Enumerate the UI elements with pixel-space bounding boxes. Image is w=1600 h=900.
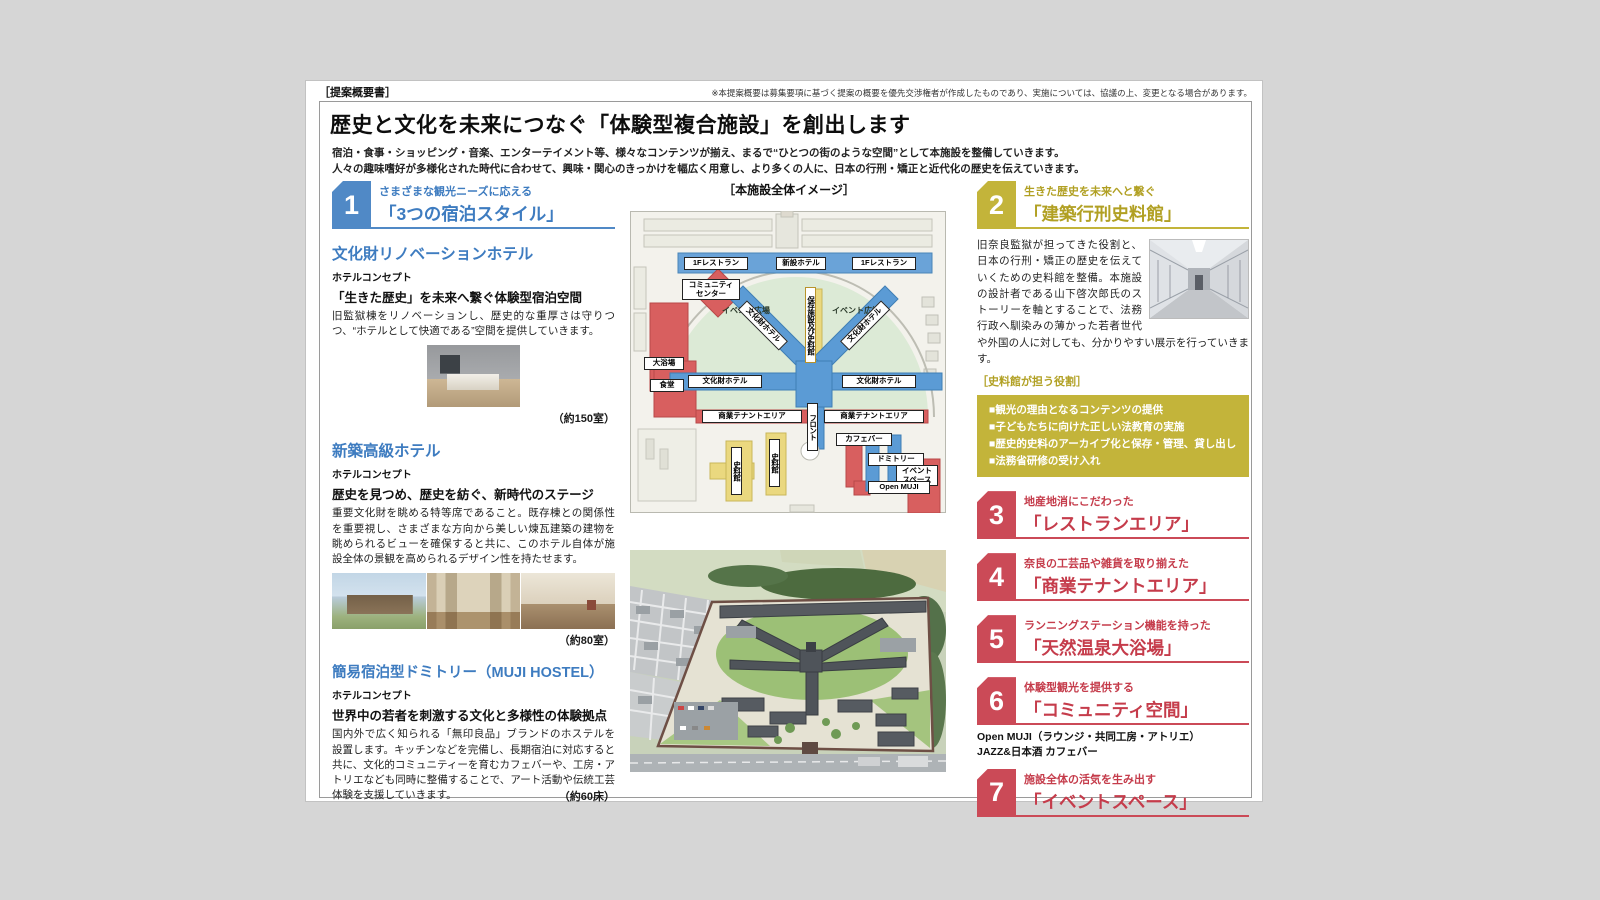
canvas: ［提案概要書］ ※本提案概要は募集要項に基づく提案の概要を優先交渉権者が作成した…	[0, 0, 1600, 900]
hotel-name: 新築高級ホテル	[332, 439, 615, 461]
facility-map-title: ［本施設全体イメージ］	[628, 181, 950, 198]
map-label-dining-hall: 食堂	[650, 379, 684, 392]
photo-bunk-room	[332, 345, 426, 407]
column-facility-image: ［本施設全体イメージ］	[628, 181, 950, 772]
disclaimer-note: ※本提案概要は募集要項に基づく提案の概要を優先交渉権者が作成したものであり、実施…	[711, 87, 1252, 99]
corridor-photo-graphic	[1150, 240, 1248, 318]
subtitle-line-1: 宿泊・食事・ショッピング・音楽、エンターテイメント等、様々なコンテンツが揃え、ま…	[332, 145, 1065, 160]
section5-header: 5 ランニングステーション機能を持った 「天然温泉大浴場」	[977, 615, 1249, 663]
subtitle-line-2: 人々の趣味嗜好が多様化された時代に合わせて、興味・関心のきっかけを幅広く用意し、…	[332, 161, 1085, 176]
map-label-dormitory: ドミトリー	[868, 453, 924, 466]
map-label-commercial-right: 商業テナントエリア	[824, 410, 924, 423]
hotel-concept-label: ホテルコンセプト	[332, 466, 615, 481]
section1-number-badge: 1	[332, 181, 371, 229]
hotel-photos-luxury	[332, 573, 615, 629]
photo-corridor-lounge	[521, 345, 615, 407]
section3-title: 「レストランエリア」	[1024, 511, 1249, 536]
museum-role-item: ■子どもたちに向けた正しい法教育の実施	[989, 419, 1243, 436]
section7-header: 7 施設全体の活気を生み出す 「イベントスペース」	[977, 769, 1249, 817]
section3-tagline: 地産地消にこだわった	[1024, 491, 1249, 509]
map-label-restaurant-left: 1Fレストラン	[684, 257, 748, 270]
museum-role-item: ■歴史的史料のアーカイブ化と保存・管理、貸し出し	[989, 436, 1243, 453]
section7-tagline: 施設全体の活気を生み出す	[1024, 769, 1249, 787]
hotel-block-luxury: 新築高級ホテル ホテルコンセプト 歴史を見つめ、歴史を紡ぐ、新時代のステージ 重…	[332, 439, 615, 648]
hotel-concept-label: ホテルコンセプト	[332, 269, 615, 284]
section1-tagline: さまざまな観光ニーズに応える	[379, 181, 615, 199]
section6-note: JAZZ&日本酒 カフェバー	[977, 745, 1249, 760]
map-label-preservation-museum: 保存施設及び史料館	[805, 287, 816, 363]
section6-title: 「コミュニティ空間」	[1024, 697, 1249, 722]
map-label-front-desk: フロント	[807, 403, 818, 451]
hotel-block-renovation: 文化財リノベーションホテル ホテルコンセプト 「生きた歴史」を未来へ繋ぐ体験型宿…	[332, 242, 615, 426]
section6-tagline: 体験型観光を提供する	[1024, 677, 1249, 695]
section4-tagline: 奈良の工芸品や雑貨を取り揃えた	[1024, 553, 1249, 571]
hotel-concept-label: ホテルコンセプト	[332, 687, 615, 702]
photo-lounge	[521, 573, 615, 629]
doc-label: ［提案概要書］	[319, 84, 396, 100]
museum-roles-title: ［史料館が担う役割］	[977, 373, 1249, 389]
hotel-name: 簡易宿泊型ドミトリー（MUJI HOSTEL）	[332, 661, 615, 682]
museum-roles-box: ■観光の理由となるコンテンツの提供 ■子どもたちに向けた正しい法教育の実施 ■歴…	[977, 395, 1249, 477]
section4-title: 「商業テナントエリア」	[1024, 573, 1249, 598]
map-label-open-muji: Open MUJI	[868, 481, 930, 494]
hotel-description: 旧監獄棟をリノベーションし、歴史的な重厚さは守りつつ、“ホテルとして快適である”…	[332, 309, 615, 339]
section2-title: 「建築行刑史料館」	[1024, 201, 1249, 226]
hotel-capacity: （約150室）	[332, 410, 615, 426]
section6-notes: Open MUJI（ラウンジ・共同工房・アトリエ） JAZZ&日本酒 カフェバー	[977, 730, 1249, 760]
map-label-commercial-left: 商業テナントエリア	[702, 410, 802, 423]
section1-title: 「3つの宿泊スタイル」	[379, 201, 615, 226]
section4-header: 4 奈良の工芸品や雑貨を取り揃えた 「商業テナントエリア」	[977, 553, 1249, 601]
map-label-community-center: コミュニティ センター	[682, 279, 740, 300]
museum-corridor-photo	[1149, 239, 1249, 319]
museum-role-item: ■観光の理由となるコンテンツの提供	[989, 402, 1243, 419]
column-accommodation: 1 さまざまな観光ニーズに応える 「3つの宿泊スタイル」 文化財リノベーションホ…	[332, 181, 615, 804]
aerial-view-photo	[630, 550, 946, 772]
map-label-cafe-bar: カフェバー	[836, 433, 892, 446]
section7-number-badge: 7	[977, 769, 1016, 817]
section7-title: 「イベントスペース」	[1024, 789, 1249, 814]
section2-number-badge: 2	[977, 181, 1016, 229]
hotel-concept: 世界中の若者を刺激する文化と多様性の体験拠点	[332, 705, 615, 724]
section6-header: 6 体験型観光を提供する 「コミュニティ空間」	[977, 677, 1249, 725]
hotel-description: 重要文化財を眺める特等席であること。既存棟との関係性を重要視し、さまざまな方向か…	[332, 506, 615, 567]
hotel-capacity: （約80室）	[332, 632, 615, 648]
column-facilities: 2 生きた歴史を未来へと繋ぐ 「建築行刑史料館」	[977, 181, 1249, 817]
map-label-restaurant-right: 1Fレストラン	[852, 257, 916, 270]
hotel-block-dormitory: 簡易宿泊型ドミトリー（MUJI HOSTEL） ホテルコンセプト 世界中の若者を…	[332, 661, 615, 804]
section5-number-badge: 5	[977, 615, 1016, 663]
hotel-concept: 歴史を見つめ、歴史を紡ぐ、新時代のステージ	[332, 484, 615, 503]
section4-number-badge: 4	[977, 553, 1016, 601]
facility-site-map: 1Fレストラン 新設ホテル 1Fレストラン コミュニティ センター 大浴場 イベ…	[630, 211, 946, 513]
section3-number-badge: 3	[977, 491, 1016, 539]
section2-header: 2 生きた歴史を未来へと繋ぐ 「建築行刑史料館」	[977, 181, 1249, 229]
map-label-museum-b: 史料館	[769, 439, 780, 487]
photo-guest-room	[427, 345, 521, 407]
main-box: 歴史と文化を未来につなぐ「体験型複合施設」を創出します 宿泊・食事・ショッピング…	[319, 101, 1252, 798]
map-label-museum-a: 史料館	[731, 447, 742, 495]
hotel-name: 文化財リノベーションホテル	[332, 242, 615, 264]
map-label-bath: 大浴場	[644, 357, 684, 370]
section6-note: Open MUJI（ラウンジ・共同工房・アトリエ）	[977, 730, 1249, 745]
section2-tagline: 生きた歴史を未来へと繋ぐ	[1024, 181, 1249, 199]
page-title: 歴史と文化を未来につなぐ「体験型複合施設」を創出します	[330, 109, 911, 139]
map-label-heritage-hotel-right: 文化財ホテル	[842, 375, 916, 388]
section6-number-badge: 6	[977, 677, 1016, 725]
section1-header: 1 さまざまな観光ニーズに応える 「3つの宿泊スタイル」	[332, 181, 615, 229]
hotel-concept: 「生きた歴史」を未来へ繋ぐ体験型宿泊空間	[332, 287, 615, 306]
section5-tagline: ランニングステーション機能を持った	[1024, 615, 1249, 633]
hotel-photos-renovation	[332, 345, 615, 407]
museum-role-item: ■法務省研修の受け入れ	[989, 453, 1243, 470]
section3-header: 3 地産地消にこだわった 「レストランエリア」	[977, 491, 1249, 539]
proposal-page: ［提案概要書］ ※本提案概要は募集要項に基づく提案の概要を優先交渉権者が作成した…	[305, 80, 1263, 802]
photo-exterior	[332, 573, 426, 629]
aerial-view-graphic	[630, 550, 946, 772]
section5-title: 「天然温泉大浴場」	[1024, 635, 1249, 660]
section2-body-wrap: 旧奈良監獄が担ってきた役割と、日本の行刑・矯正の歴史を伝えていくための史料館を整…	[977, 237, 1249, 367]
map-label-new-hotel: 新設ホテル	[776, 257, 826, 270]
photo-atrium	[427, 573, 521, 629]
map-label-heritage-hotel-left: 文化財ホテル	[688, 375, 762, 388]
